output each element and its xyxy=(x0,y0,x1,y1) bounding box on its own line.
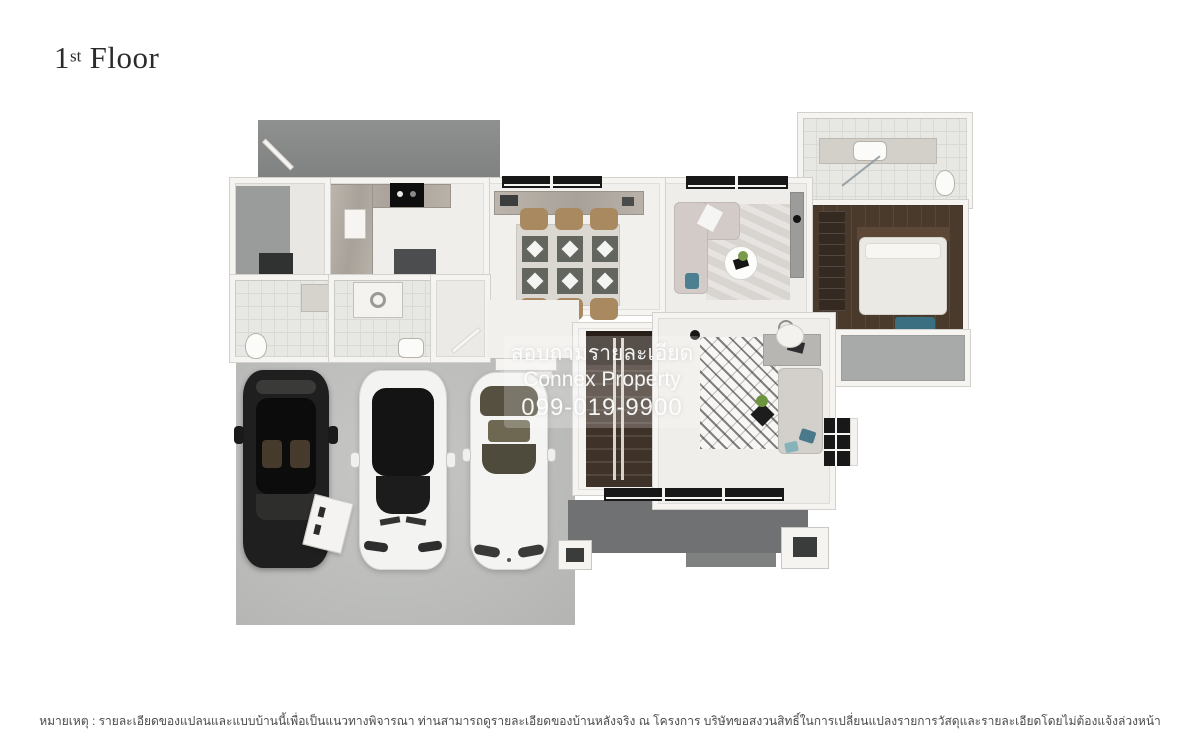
family-window-bottom xyxy=(604,488,784,501)
placemat xyxy=(557,268,583,294)
desk-chair xyxy=(776,324,804,348)
sideboard-item-left xyxy=(500,195,518,206)
placemat xyxy=(592,236,618,262)
kitchen xyxy=(323,178,489,282)
washing-machine xyxy=(353,282,403,318)
deck-step xyxy=(686,553,776,567)
bathroom-left xyxy=(230,275,334,362)
bath-vanity xyxy=(301,284,331,312)
white-sedan xyxy=(356,370,450,570)
utility-cabinet xyxy=(259,253,293,275)
sink xyxy=(853,141,887,161)
wardrobe xyxy=(819,211,845,311)
dining-chair xyxy=(520,208,548,230)
bathroom-right xyxy=(329,275,436,362)
placemat xyxy=(592,268,618,294)
living-room xyxy=(658,178,812,325)
bathroom-ensuite xyxy=(798,113,972,208)
side-table-plant xyxy=(756,395,768,407)
living-window-top xyxy=(686,176,788,189)
fridge xyxy=(344,209,366,239)
bed-pillows xyxy=(865,243,941,259)
coffee-table-plant xyxy=(738,251,748,261)
watermark-line-thai: สอบถามรายละเอียด xyxy=(511,341,693,367)
entry-vestibule xyxy=(431,275,490,362)
entry-door-leaf xyxy=(451,327,482,354)
sedan-mirror xyxy=(350,452,360,468)
cooktop xyxy=(390,183,424,207)
watermark: สอบถามรายละเอียด Connex Property 099-019… xyxy=(504,336,700,428)
suv-mirror xyxy=(328,426,338,444)
dining-window-top xyxy=(502,176,602,188)
bedroom-terrace xyxy=(836,330,970,386)
media-unit xyxy=(790,192,804,278)
family-window-sill xyxy=(850,418,858,466)
sedan-mirror xyxy=(446,452,456,468)
watermark-phone: 099-019-9900 xyxy=(521,393,682,423)
family-sofa xyxy=(778,368,823,454)
planter-left-soil xyxy=(566,548,584,562)
dining-chair xyxy=(555,208,583,230)
placemat xyxy=(557,236,583,262)
bath-sink xyxy=(398,338,424,358)
placemat xyxy=(522,268,548,294)
suv-rear-window xyxy=(256,380,316,394)
suv-windshield xyxy=(256,494,316,520)
suv-interior xyxy=(290,440,310,468)
dining-chair xyxy=(590,298,618,320)
page: { "title": { "number": "1", "ordinal": "… xyxy=(0,0,1200,750)
speaker-dot xyxy=(793,215,801,223)
utility-room xyxy=(230,178,330,282)
planter-right-soil xyxy=(793,537,817,557)
sideboard-item-right xyxy=(622,197,634,206)
sports-emblem xyxy=(507,558,511,562)
sedan-windshield xyxy=(376,476,430,514)
planter-box-right xyxy=(781,527,829,569)
toilet xyxy=(245,333,267,359)
sofa-blue-cushion xyxy=(685,273,699,289)
dining-room xyxy=(480,178,665,315)
sports-mirror xyxy=(462,448,471,462)
dining-chair xyxy=(590,208,618,230)
kitchen-island xyxy=(394,249,436,274)
suv-mirror xyxy=(234,426,244,444)
sports-mirror xyxy=(547,448,556,462)
sports-windshield xyxy=(482,444,536,474)
suv-interior xyxy=(262,440,282,468)
sedan-roof-glass xyxy=(372,388,434,476)
planter-box-left xyxy=(558,540,592,570)
watermark-brand: Connex Property xyxy=(523,367,681,393)
family-window-right xyxy=(824,418,850,466)
placemat xyxy=(522,236,548,262)
toilet xyxy=(935,170,955,196)
footer-note: หมายเหตุ : รายละเอียดของแปลนและแบบบ้านนี… xyxy=(0,712,1200,731)
